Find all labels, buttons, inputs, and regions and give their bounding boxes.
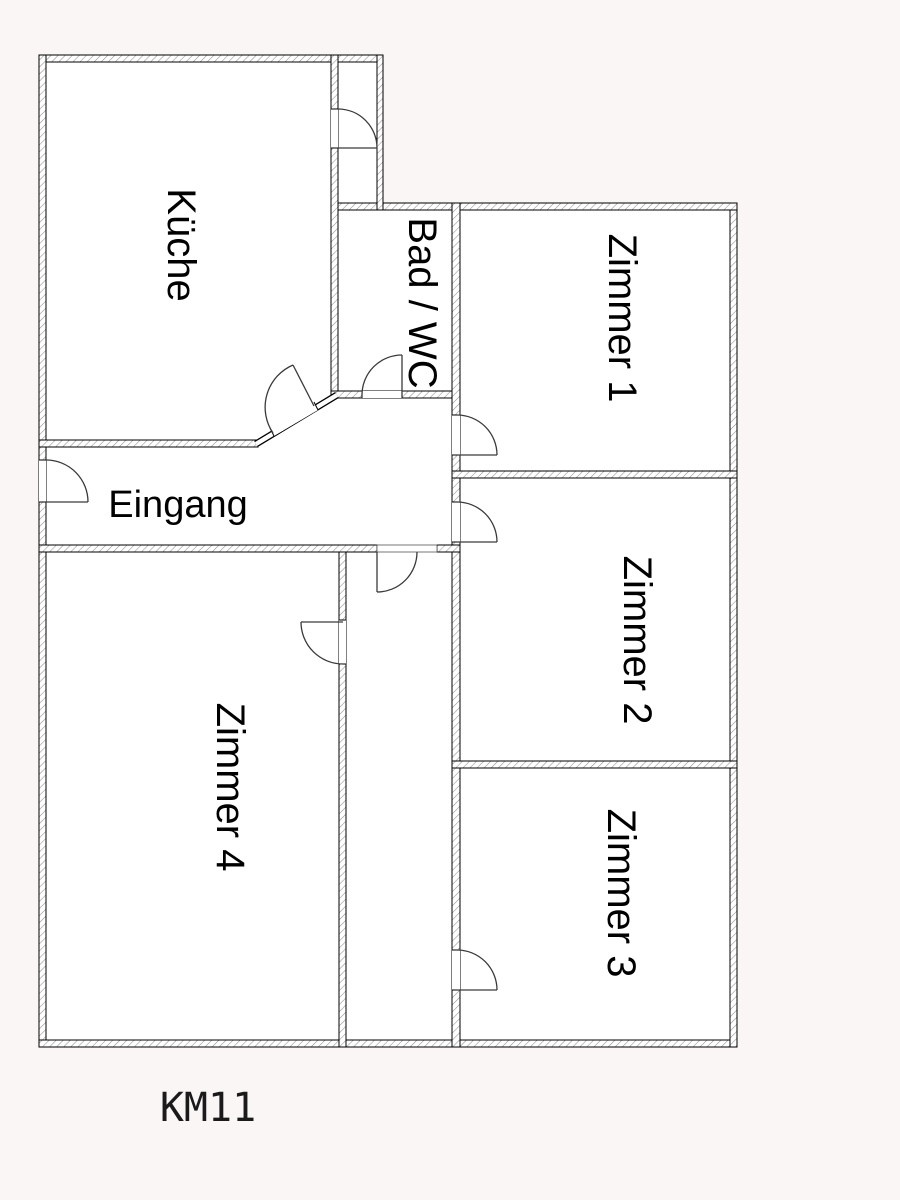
- wall-eingang-bottom: [39, 545, 377, 552]
- wall-exterior-bottom: [39, 1040, 737, 1047]
- wall-zimmer1-zimmer2-divider: [452, 471, 737, 478]
- opening-entrance: [39, 460, 46, 502]
- room-label-zimmer-1: Zimmer 1: [600, 234, 644, 403]
- wall-kueche-bottom: [39, 440, 258, 447]
- floorplan-svg: Küche Bad / WC Zimmer 1 Zimmer 2 Zimmer …: [0, 0, 900, 1200]
- room-label-kueche: Küche: [159, 188, 203, 301]
- wall-center-vertical: [452, 203, 460, 1047]
- opening-shaft: [331, 109, 338, 148]
- room-label-zimmer-3: Zimmer 3: [599, 809, 643, 978]
- room-label-bad-wc: Bad / WC: [400, 217, 444, 388]
- opening-zimmer-1: [452, 415, 460, 455]
- wall-exterior-right: [730, 203, 737, 1047]
- plan-code-label: KM11: [160, 1085, 256, 1131]
- wall-zimmer2-zimmer3-divider: [452, 761, 737, 768]
- opening-zimmer-2: [452, 502, 460, 542]
- room-label-zimmer-2: Zimmer 2: [615, 556, 659, 725]
- room-label-zimmer-4: Zimmer 4: [208, 703, 252, 872]
- wall-kueche-right: [331, 55, 338, 398]
- opening-hall-strip: [377, 545, 437, 552]
- opening-zimmer-4: [339, 620, 346, 664]
- wall-shaft-right: [377, 55, 383, 210]
- opening-bad-wc: [362, 391, 402, 398]
- wall-eingang-bottom-right-piece: [437, 545, 460, 552]
- wall-right-block-top: [331, 203, 737, 210]
- opening-zimmer-3: [452, 950, 460, 990]
- room-label-eingang: Eingang: [108, 484, 247, 526]
